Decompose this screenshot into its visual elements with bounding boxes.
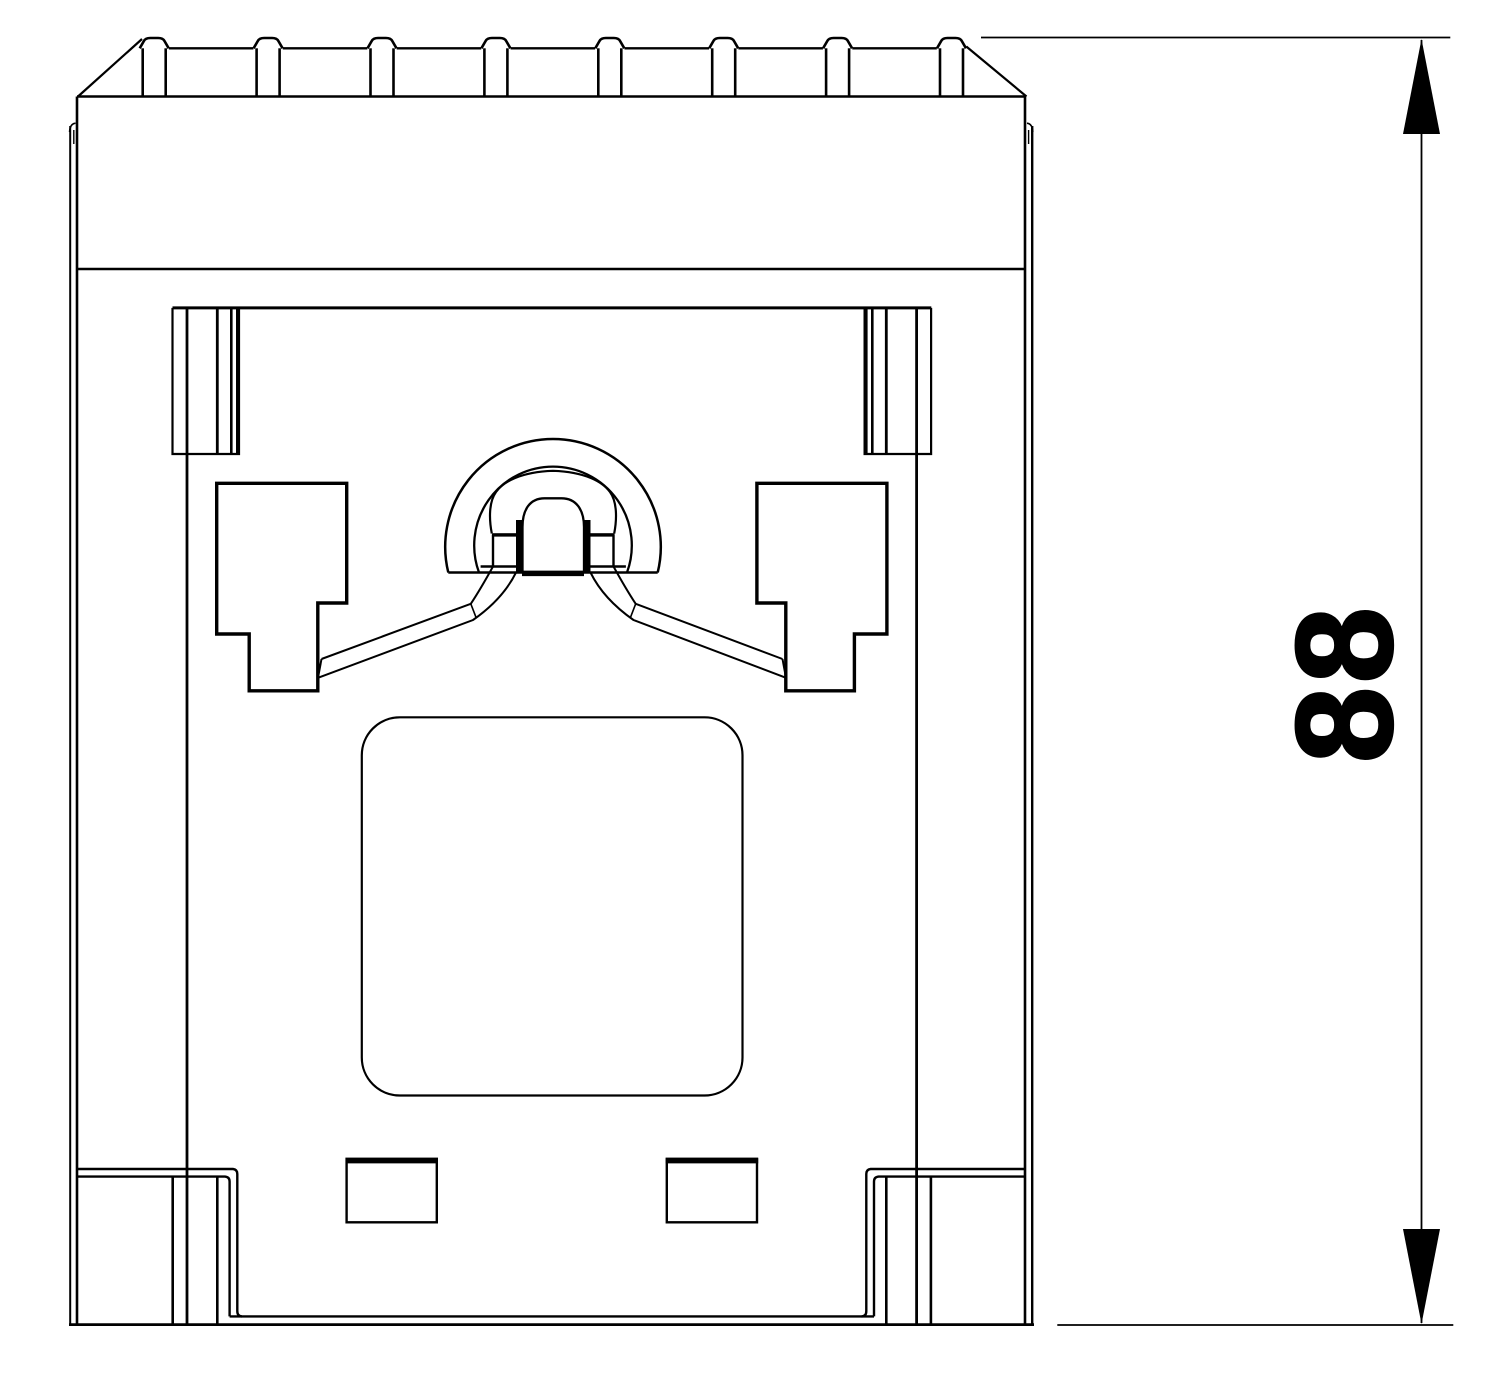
svg-text:88: 88	[1269, 604, 1422, 763]
